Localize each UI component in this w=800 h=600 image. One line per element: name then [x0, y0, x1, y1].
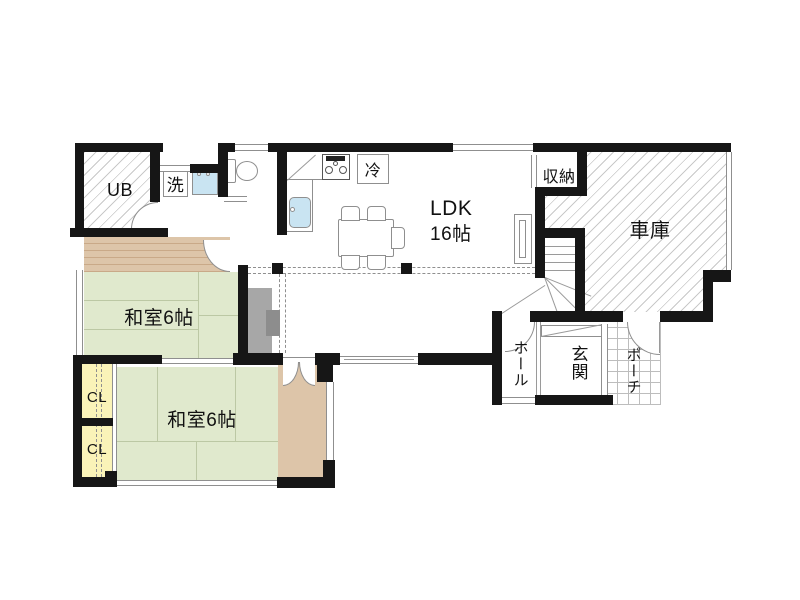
chair: [341, 255, 360, 270]
wall-segment: [70, 228, 168, 237]
wall-segment: [575, 228, 585, 320]
tatami-line: [84, 300, 198, 301]
room-label-storage: 収納: [537, 164, 581, 186]
wall-segment: [317, 357, 333, 382]
stove-burner: [325, 166, 333, 174]
window: [76, 270, 83, 356]
chair: [367, 206, 386, 221]
room-label-fridge: 冷: [357, 156, 389, 182]
window: [453, 144, 533, 151]
wall-segment: [238, 265, 248, 360]
room-label-porch: ポーチ: [622, 347, 644, 405]
chair: [341, 206, 360, 221]
ldk-divider-dashed: [248, 273, 535, 274]
wall-segment: [277, 152, 287, 235]
divider-post: [272, 263, 283, 274]
stove-burner: [339, 166, 347, 174]
garage-opening: [726, 152, 732, 270]
stair-tread: [545, 254, 575, 255]
wall-segment: [323, 460, 335, 487]
wall-segment: [75, 143, 163, 152]
tatami-line: [196, 441, 197, 480]
wall-segment: [75, 143, 84, 237]
ldk-divider-dashed: [285, 274, 286, 353]
porch-door-leaf: [659, 322, 660, 353]
chair: [367, 255, 386, 270]
wall-segment: [190, 164, 220, 173]
wall-segment: [73, 355, 82, 487]
room-label-laundry: 洗: [164, 171, 187, 195]
genkan-step-line: [536, 322, 537, 395]
washbasin-fixture: [192, 170, 218, 195]
toilet-bowl: [236, 161, 258, 181]
sink-faucet-icon: [290, 207, 295, 212]
wall-segment: [105, 471, 117, 487]
tatami-line: [112, 441, 278, 442]
window: [115, 480, 277, 486]
room-label-garage: 車庫: [624, 216, 676, 240]
room-label-closet-lower: CL: [84, 440, 110, 458]
window: [326, 382, 334, 462]
wall-segment: [535, 395, 613, 405]
wall-segment: [268, 143, 453, 152]
stair-tread: [545, 246, 575, 247]
chair: [391, 227, 405, 249]
stair-tread: [545, 270, 575, 271]
dining-table: [338, 219, 394, 257]
wall-segment: [75, 355, 162, 364]
divider-post: [401, 263, 412, 274]
ldk-divider-dashed: [248, 267, 535, 268]
stair-tread: [545, 262, 575, 263]
wall-segment: [535, 187, 587, 196]
room-label-washitsu-upper: 和室6帖: [97, 304, 221, 328]
entrance-sliding-door: [601, 324, 608, 396]
room-label-closet-upper: CL: [84, 388, 110, 406]
room-label-ldk-size: 16帖: [430, 220, 500, 244]
sliding-window-mid: [344, 359, 414, 360]
fusuma-partition: [160, 358, 233, 364]
tv-icon: [266, 310, 280, 336]
sliding-window: [340, 356, 418, 364]
room-label-hall: ホール: [509, 340, 531, 400]
wall-segment: [530, 311, 623, 322]
room-label-entrance: 玄関: [566, 345, 590, 395]
room-label-ub: UB: [95, 179, 145, 201]
kitchen-sink-fixture: [289, 197, 311, 228]
wall-segment: [218, 143, 235, 152]
room-label-ldk: LDK: [430, 197, 500, 221]
window: [235, 144, 268, 151]
floor-plan: UB 洗 冷 LDK 16帖 収納 車庫 和室6帖 和室6帖 CL CL ホール…: [0, 0, 800, 600]
room-label-washitsu-lower: 和室6帖: [140, 406, 264, 430]
wall-segment: [703, 270, 731, 282]
wall-segment: [418, 353, 493, 365]
wall-segment: [533, 143, 731, 152]
wall-segment: [492, 311, 502, 405]
stove-burner-small: [333, 161, 338, 166]
ldk-counter-inner: [519, 220, 526, 258]
wall-segment: [150, 152, 160, 202]
wall-segment: [233, 353, 283, 365]
